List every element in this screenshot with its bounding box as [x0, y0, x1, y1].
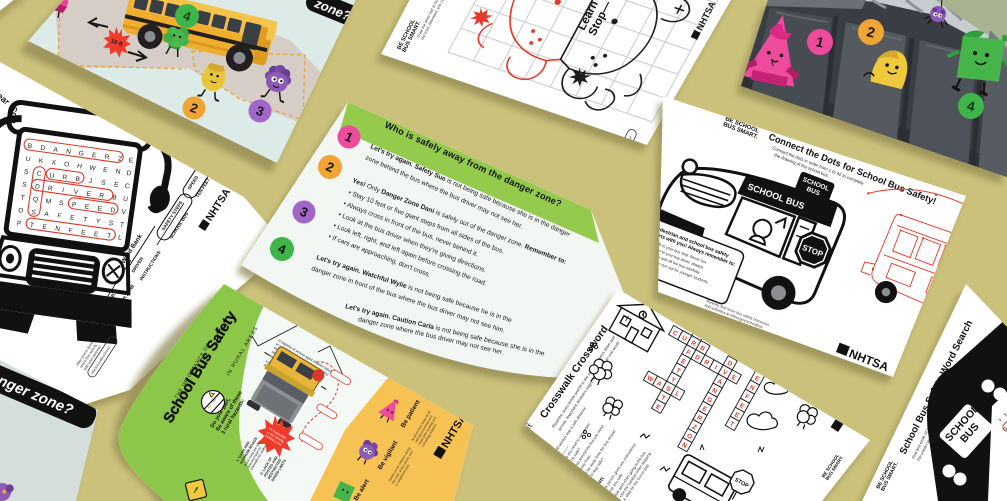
svg-text:M: M	[45, 198, 51, 206]
svg-text:G: G	[78, 150, 84, 158]
svg-text:Q: Q	[32, 196, 38, 204]
svg-text:O: O	[64, 161, 70, 169]
svg-text:O: O	[18, 207, 24, 215]
